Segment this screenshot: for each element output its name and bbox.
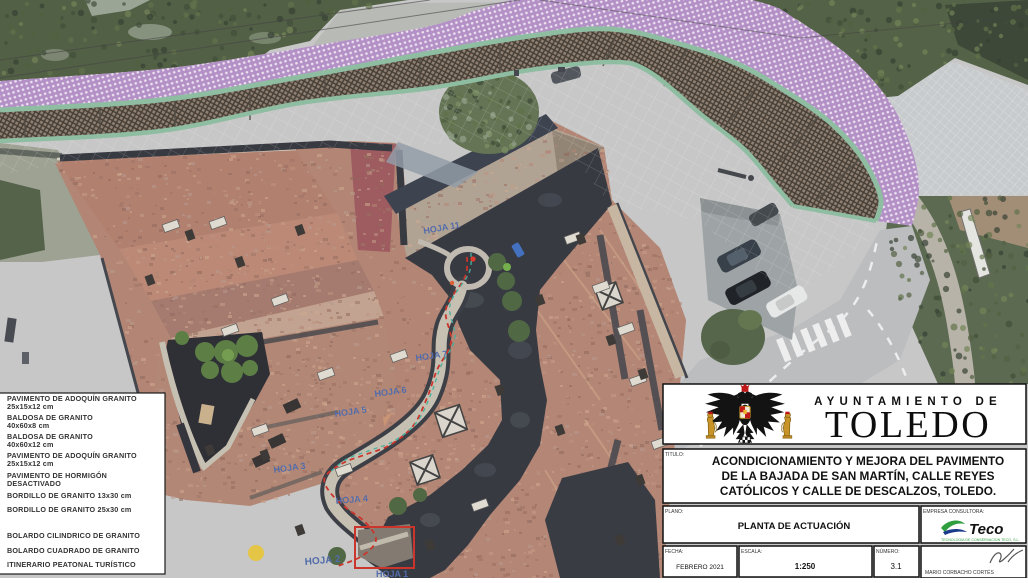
svg-text:40x60x8 cm: 40x60x8 cm (7, 421, 49, 430)
svg-text:TITULO:: TITULO: (665, 452, 684, 458)
svg-text:ESCALA:: ESCALA: (741, 549, 762, 555)
svg-text:BOLARDO CUADRADO DE GRANITO: BOLARDO CUADRADO DE GRANITO (7, 546, 140, 555)
svg-text:DE LA BAJADA DE SAN MARTÍN, CA: DE LA BAJADA DE SAN MARTÍN, CALLE REYES (721, 469, 994, 483)
svg-text:25x15x12 cm: 25x15x12 cm (7, 402, 54, 411)
svg-text:TECNOLOGIA DE CONSERVACION TEC: TECNOLOGIA DE CONSERVACION TECO, S.L. (941, 538, 1019, 542)
svg-text:PLANO:: PLANO: (665, 509, 683, 515)
svg-text:ACONDICIONAMIENTO Y MEJORA DEL: ACONDICIONAMIENTO Y MEJORA DEL PAVIMENTO (712, 454, 1004, 468)
svg-text:Teco: Teco (969, 521, 1003, 538)
svg-text:ITINERARIO PEATONAL TURÍSTICO: ITINERARIO PEATONAL TURÍSTICO (7, 560, 136, 569)
svg-text:BOLARDO CILINDRICO DE GRANITO: BOLARDO CILINDRICO DE GRANITO (7, 531, 140, 540)
svg-text:BORDILLO DE GRANITO 13x30 cm: BORDILLO DE GRANITO 13x30 cm (7, 491, 132, 500)
svg-text:BORDILLO DE GRANITO 25x30 cm: BORDILLO DE GRANITO 25x30 cm (7, 505, 132, 514)
svg-text:TOLEDO: TOLEDO (825, 404, 991, 446)
svg-text:EMPRESA CONSULTORA:: EMPRESA CONSULTORA: (923, 509, 984, 515)
svg-text:1:250: 1:250 (795, 562, 816, 571)
svg-text:FECHA:: FECHA: (665, 549, 683, 555)
svg-text:CATÓLICOS Y CALLE DE DESCALZOS: CATÓLICOS Y CALLE DE DESCALZOS, TOLEDO. (720, 484, 996, 498)
svg-text:NÚMERO:: NÚMERO: (876, 548, 900, 555)
svg-text:40x60x12 cm: 40x60x12 cm (7, 440, 54, 449)
svg-text:25x15x12 cm: 25x15x12 cm (7, 459, 54, 468)
svg-text:DESACTIVADO: DESACTIVADO (7, 479, 61, 488)
svg-text:PLANTA DE ACTUACIÓN: PLANTA DE ACTUACIÓN (738, 520, 851, 532)
svg-text:MARIO CORBACHO CORTÉS: MARIO CORBACHO CORTÉS (925, 569, 994, 576)
svg-text:FEBRERO 2021: FEBRERO 2021 (676, 564, 724, 571)
svg-text:3.1: 3.1 (890, 562, 902, 571)
